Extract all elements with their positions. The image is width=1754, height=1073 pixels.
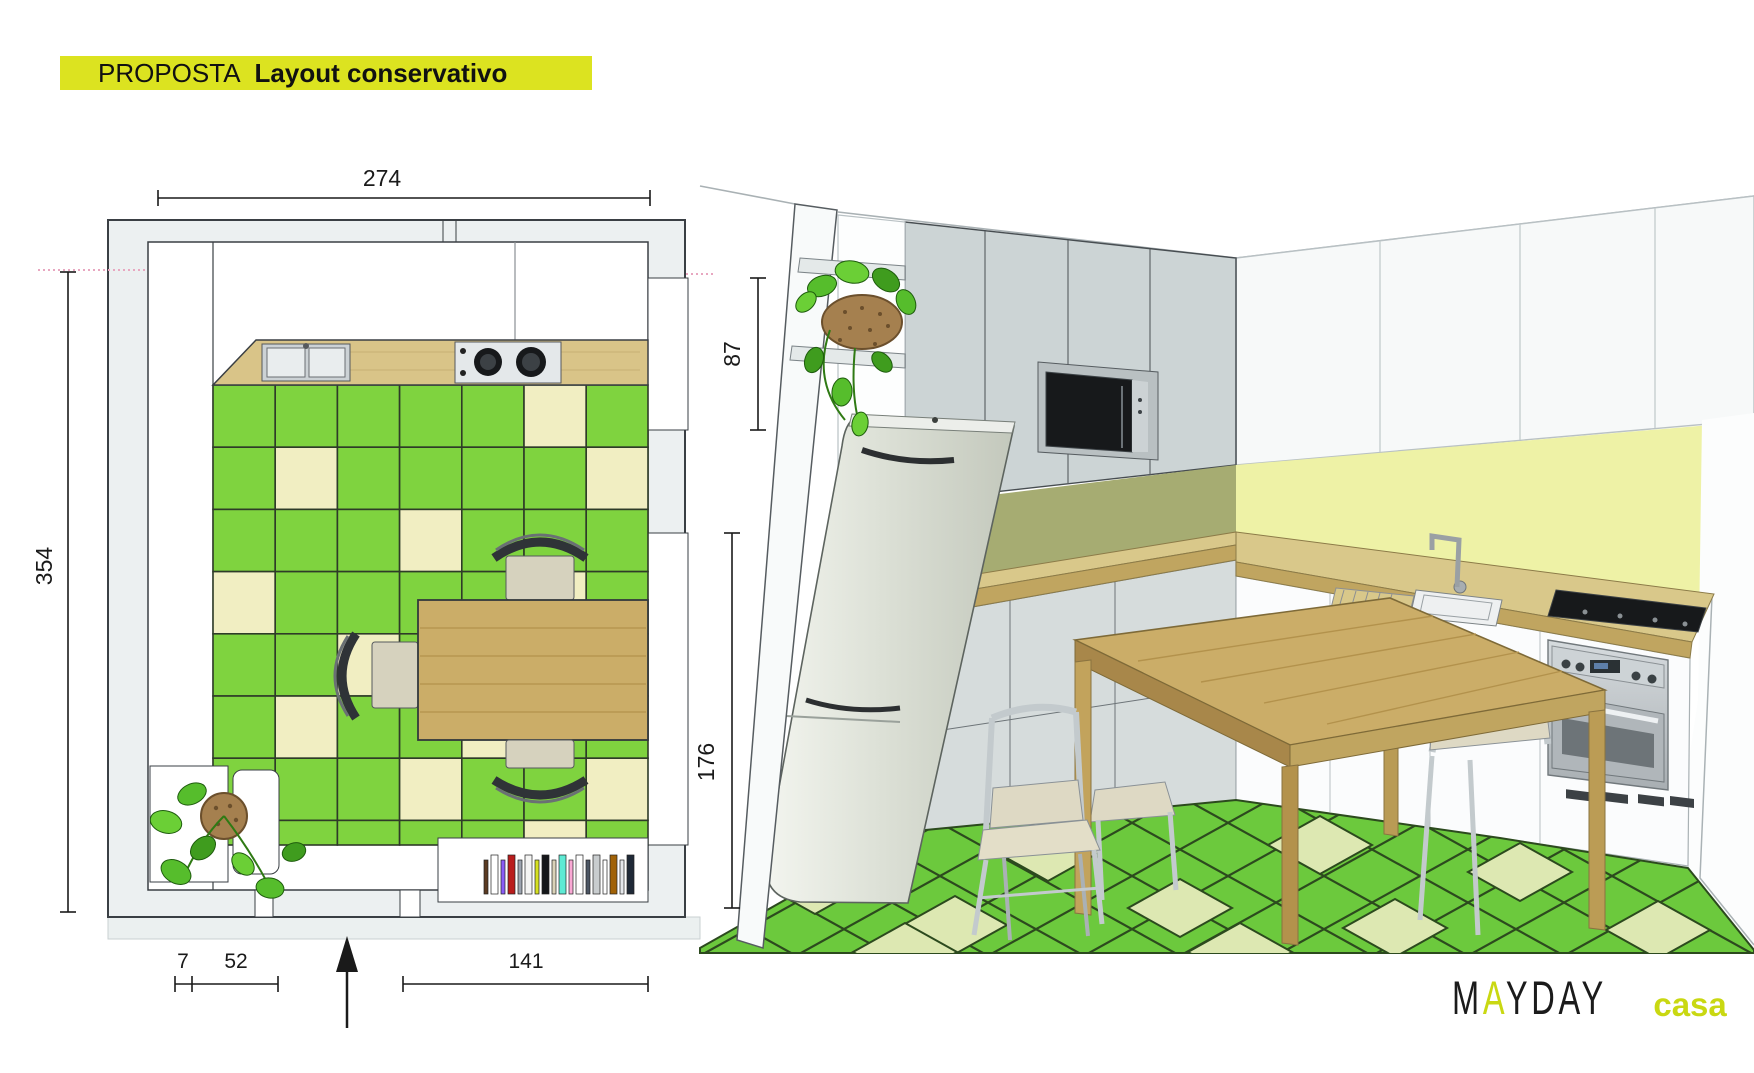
plan-tile [462,447,524,509]
shelf-item [542,855,549,894]
plan-tile [213,634,275,696]
plan-table [418,600,648,740]
north-arrow-icon [336,936,358,1028]
shelf-item [603,860,607,894]
plan-tile [337,385,399,447]
plan-tile [462,385,524,447]
plan-tile [586,385,648,447]
plan-sink [262,343,350,381]
plan-tile [586,509,648,571]
logo-letter: A [1558,972,1581,1025]
plan-tile [400,385,462,447]
plan-tile [337,572,399,634]
shelf-item [620,860,624,894]
plan-tile [524,447,586,509]
plan-tile [275,509,337,571]
plan-tile [337,820,399,845]
plan-tile [213,447,275,509]
dim-bottom-a: 7 [177,950,189,973]
shelf-item [593,855,600,894]
shelf-item [610,855,617,894]
dim-right-upper: 87 [719,341,745,367]
plan-tile [400,447,462,509]
shelf-item [559,855,566,894]
dim-right-lower: 176 [693,743,719,781]
floor-plan: 274 354 7 52 141 [31,165,716,1028]
window-recess-lower [648,533,688,845]
upper-cabinets-right [1236,196,1754,465]
window-recess-upper [648,278,688,430]
plan-tile [586,758,648,820]
shelf-item [586,860,590,894]
shelf-item [569,860,573,894]
logo-letter: Y [1506,972,1531,1025]
floor-grid-line [0,690,28,1000]
plan-tile [275,758,337,820]
wall-opening [400,890,420,917]
shelf-item [491,855,498,894]
plan-tile [524,385,586,447]
shelf-item [484,860,488,894]
floor-grid-line [0,690,124,1000]
logo-letter: Y [1581,972,1606,1025]
logo-casa: casa [1653,986,1726,1026]
logo-letter: D [1531,972,1558,1025]
shelf-item [518,860,522,894]
shelf-item [552,860,556,894]
plan-tile [275,696,337,758]
plan-tile [400,509,462,571]
plan-tile [337,509,399,571]
balcony-slab [108,917,700,939]
plan-tile [213,509,275,571]
brand-logo: MAYDAYcasa [1452,976,1727,1026]
dim-bottom-c: 141 [508,950,543,973]
plan-tile [337,447,399,509]
shelf-item [535,860,539,894]
plan-tile [213,572,275,634]
design-sheet: 274 354 7 52 141 [0,0,1754,1073]
plan-tile [213,385,275,447]
microwave-icon [1046,372,1132,452]
shelf-item [576,855,583,894]
plan-tile [213,696,275,758]
logo-letter: A [1483,972,1506,1025]
logo-letter: M [1452,972,1483,1025]
dim-top: 274 [363,165,402,191]
plan-tile [275,572,337,634]
logo-mayday: MAYDAY [1452,972,1607,1026]
plan-tile [337,758,399,820]
plan-tile [400,758,462,820]
shelf-item [508,855,515,894]
shelf-item [627,855,634,894]
dim-bottom-b: 52 [224,950,247,973]
plan-tile [275,447,337,509]
shelf-item [501,860,505,894]
plan-tile [275,634,337,696]
plan-tile [275,820,337,845]
shelf-item [525,855,532,894]
plan-tile [275,385,337,447]
plan-hob [455,342,561,383]
dim-left: 354 [31,547,57,586]
plan-tile [586,447,648,509]
